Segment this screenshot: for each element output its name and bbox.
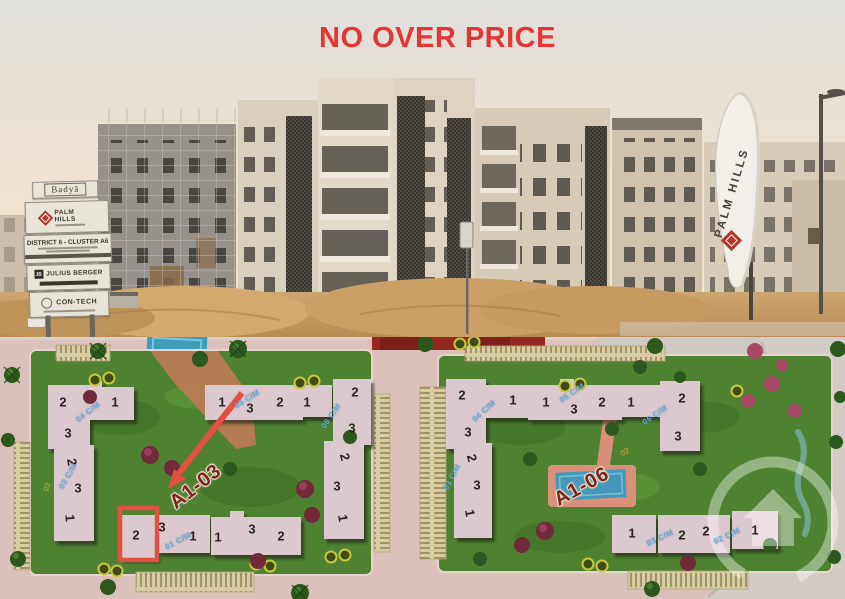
contractor2-name: CON-TECH <box>56 298 97 306</box>
billboard-panel-badya: Badyā <box>32 180 98 199</box>
contractor1-name: JULIUS BERGER <box>46 269 103 277</box>
headline: NO OVER PRICE <box>30 22 845 55</box>
site-plan-map <box>0 337 845 599</box>
contech-logo-icon <box>41 297 52 308</box>
billboard-panel-contech: CON-TECH <box>29 290 110 318</box>
project-billboard: Badyā PALM HILLS DISTRICT 6 - CLUSTER A6… <box>22 177 116 335</box>
billboard-panel-julius-berger: JB JULIUS BERGER <box>26 263 111 291</box>
project-name: Badyā <box>44 183 86 197</box>
palm-hills-diamond-icon <box>37 210 53 226</box>
palm-hills-flag: PALM HILLS <box>700 85 772 297</box>
developer-name: PALM HILLS <box>54 208 76 223</box>
billboard-panel-palm-hills: PALM HILLS <box>25 200 110 234</box>
real-estate-ad-image: NO OVER PRICE Badyā PALM HILLS DISTRICT … <box>0 0 845 599</box>
billboard-panel-district: DISTRICT 6 - CLUSTER A6 <box>23 233 112 264</box>
jb-logo-icon: JB <box>34 270 43 279</box>
